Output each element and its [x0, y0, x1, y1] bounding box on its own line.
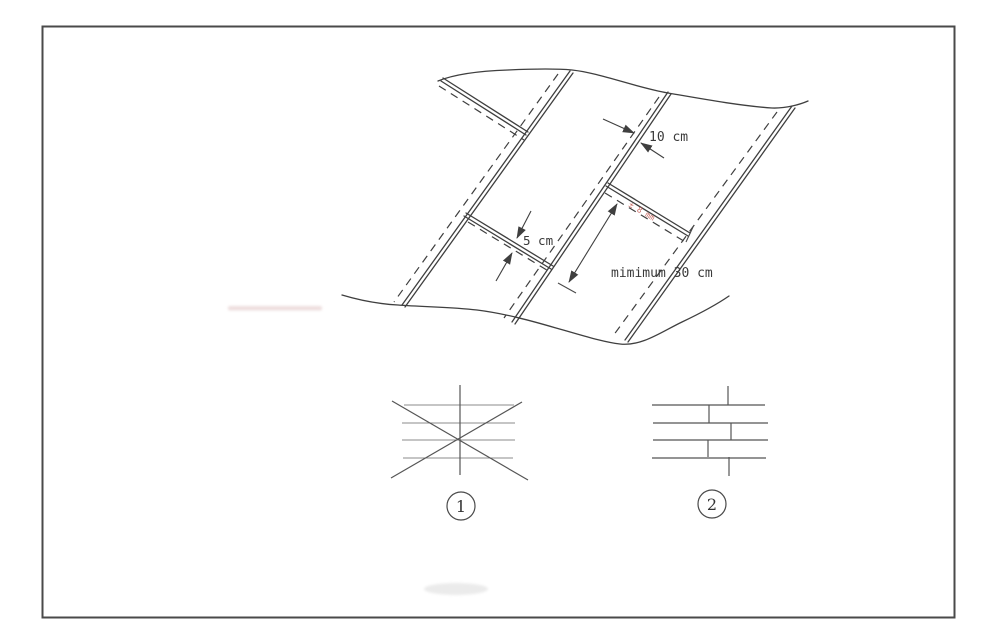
bottom-edge-curve — [342, 295, 729, 344]
smudge-gray — [424, 583, 488, 595]
seam-line — [608, 183, 690, 233]
dim-5cm: 5 cm — [496, 211, 553, 281]
long-seam-3 — [613, 106, 795, 342]
smudge-pink — [228, 306, 322, 311]
dim-5cm-arrow-lower — [496, 253, 512, 281]
seam-layout-diagram: 10 cm 5 cm mimimum 30 cm ± 8 mm — [228, 69, 808, 595]
dim-30cm-end-tick — [558, 283, 576, 293]
overlap-edge-dashed — [439, 86, 524, 140]
seam-line — [402, 71, 570, 305]
option1-number: 1 — [456, 497, 466, 516]
pattern-option-2: 2 — [652, 386, 768, 518]
option2-number: 2 — [707, 495, 717, 514]
seam-line — [441, 81, 526, 135]
overlap-edge-dashed — [613, 112, 777, 336]
seam-line — [405, 73, 573, 307]
overlap-edge-dashed — [394, 74, 558, 302]
dim-10cm-arrow-upper — [603, 119, 634, 133]
cross-seam-1 — [439, 78, 528, 140]
seam-line — [443, 78, 528, 132]
dim-label-10cm: 10 cm — [649, 130, 688, 145]
pattern-option-1: 1 — [391, 385, 528, 520]
top-edge-curve — [438, 69, 808, 108]
dim-label-5cm: 5 cm — [523, 233, 553, 248]
page-border — [43, 27, 955, 618]
dim-10cm-arrow-lower — [641, 143, 664, 158]
dim-label-min30cm: mimimum 30 cm — [611, 266, 713, 281]
figure-svg: 10 cm 5 cm mimimum 30 cm ± 8 mm 1 — [0, 0, 1000, 633]
document-page: 10 cm 5 cm mimimum 30 cm ± 8 mm 1 — [0, 0, 1000, 633]
seam-end-tick — [686, 227, 693, 242]
